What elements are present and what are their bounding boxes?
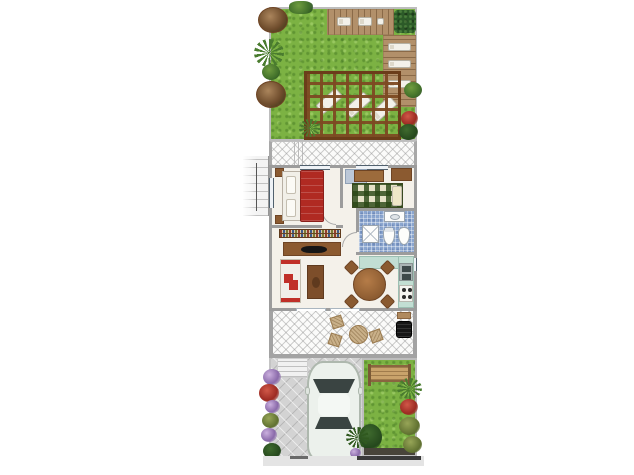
sideboard: [283, 242, 341, 256]
sidewalk: [263, 456, 424, 466]
bookshelf: [279, 229, 341, 238]
grass-tuft-icon: [299, 119, 321, 137]
grill-side-table: [397, 312, 411, 319]
shrub-icon: [262, 413, 279, 428]
shower-icon: [362, 225, 379, 243]
burner: [402, 295, 406, 299]
wall-bedroom-hall: [340, 168, 343, 208]
flower-cluster-icon: [265, 400, 280, 413]
chair-icon: [380, 294, 396, 310]
fern-icon: [254, 39, 284, 67]
burner: [408, 295, 412, 299]
washbasin-icon: [384, 211, 405, 222]
shrub-icon: [403, 436, 422, 453]
kitchen-sink-icon: [399, 263, 413, 281]
basin-bowl: [390, 214, 400, 220]
coffee-table: [307, 265, 324, 299]
sofa-throw: [289, 280, 298, 290]
door-arc: [342, 232, 357, 247]
rear-window: [315, 417, 353, 429]
table-inlay: [312, 277, 320, 288]
flower-cluster-icon: [400, 399, 418, 415]
flower-cluster-icon: [259, 384, 279, 402]
sofa-cushion: [281, 298, 300, 302]
shrub-icon: [289, 1, 313, 14]
top-wood-deck: [327, 9, 394, 35]
door-arc: [322, 211, 336, 225]
upper-terrace: [269, 141, 417, 165]
covered-patio: [269, 311, 417, 358]
double-bed: [282, 171, 324, 221]
plaid-daybed: [352, 183, 403, 208]
leafy-plant-icon: [346, 427, 369, 448]
window-icon: [269, 178, 274, 208]
windshield: [313, 379, 355, 393]
flower-cluster-icon: [261, 428, 277, 442]
cooktop-icon: [399, 285, 413, 302]
red-duvet: [300, 170, 324, 222]
wicker-chair-icon: [368, 328, 383, 343]
sun-lounger-icon: [337, 17, 351, 26]
wicker-chair-icon: [329, 314, 344, 329]
corner-hedge: [394, 10, 416, 33]
sun-lounger-icon: [358, 17, 372, 26]
bench-leg: [368, 364, 371, 386]
staircase-rail: [256, 163, 257, 211]
kerb-mark: [357, 456, 421, 460]
cistern: [385, 228, 393, 232]
dining-table: [353, 268, 386, 301]
shrub-icon: [404, 82, 422, 98]
sun-lounger-icon: [388, 43, 411, 51]
burner: [408, 288, 412, 292]
leafy-plant-icon: [397, 378, 422, 399]
shrub-icon: [262, 64, 280, 80]
wall-stub: [336, 225, 343, 228]
wall-bathroom-kitchen: [356, 252, 414, 255]
kerb-mark: [290, 456, 308, 459]
flower-cluster-icon: [263, 369, 281, 385]
floor-plan-canvas: [0, 0, 634, 475]
tree-icon: [256, 81, 286, 108]
house-upper-floor: [269, 165, 417, 311]
entrance-steps: [277, 358, 308, 378]
pillow-icon: [392, 186, 402, 206]
shrub-icon: [399, 417, 420, 435]
side-mirror-icon: [305, 387, 310, 395]
pillow-icon: [286, 199, 296, 217]
back-garden: [269, 7, 417, 141]
pillow-icon: [286, 176, 296, 194]
tree-icon: [258, 7, 288, 33]
sofa: [280, 259, 301, 303]
terrace-steps: [294, 142, 306, 165]
wall-bedroom-bottom: [272, 225, 322, 228]
sink-basin: [402, 274, 411, 280]
tv-icon: [301, 246, 327, 253]
sink-basin: [402, 266, 411, 272]
desk: [354, 170, 384, 182]
car-roof: [318, 394, 350, 416]
wicker-chair-icon: [327, 332, 342, 347]
shrub-icon: [399, 124, 418, 140]
sofa-cushion: [281, 260, 300, 264]
sun-lounger-icon: [388, 60, 411, 68]
cabinet: [391, 168, 412, 181]
wicker-table: [349, 325, 368, 344]
burner: [402, 288, 406, 292]
deck-side-table: [377, 18, 384, 25]
barbecue-grill-icon: [396, 321, 412, 338]
